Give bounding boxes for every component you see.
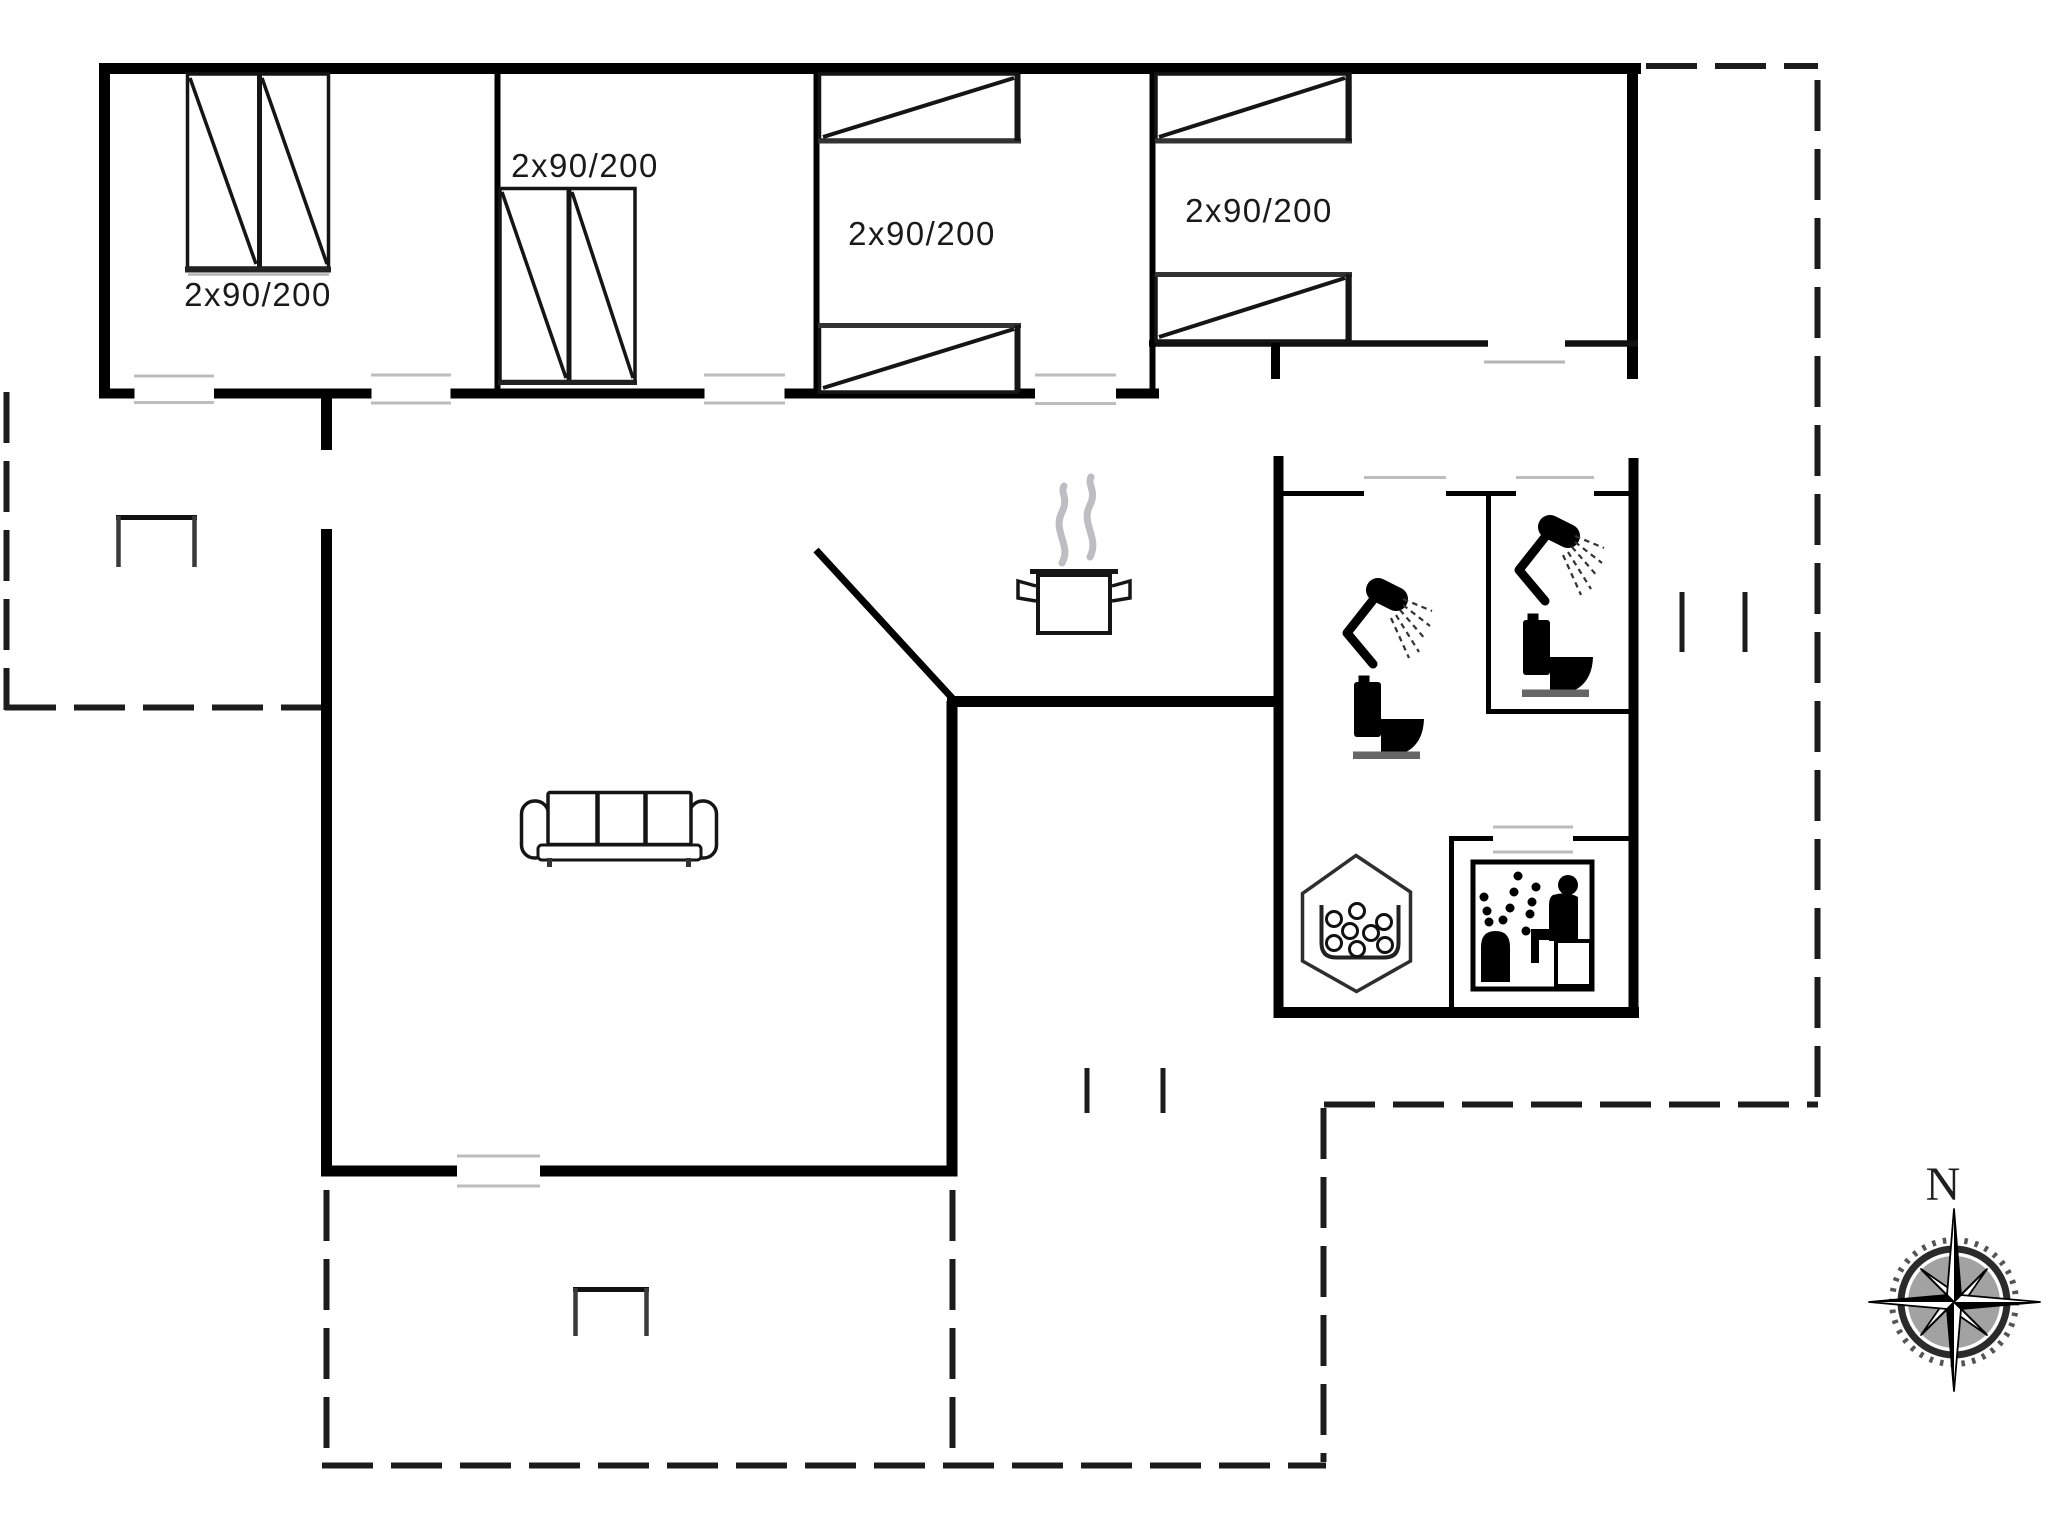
svg-text:2x90/200: 2x90/200	[1185, 192, 1333, 229]
svg-text:2x90/200: 2x90/200	[511, 147, 659, 184]
svg-text:2x90/200: 2x90/200	[848, 215, 996, 252]
svg-text:2x90/200: 2x90/200	[184, 276, 332, 313]
svg-text:N: N	[1926, 1158, 1961, 1211]
